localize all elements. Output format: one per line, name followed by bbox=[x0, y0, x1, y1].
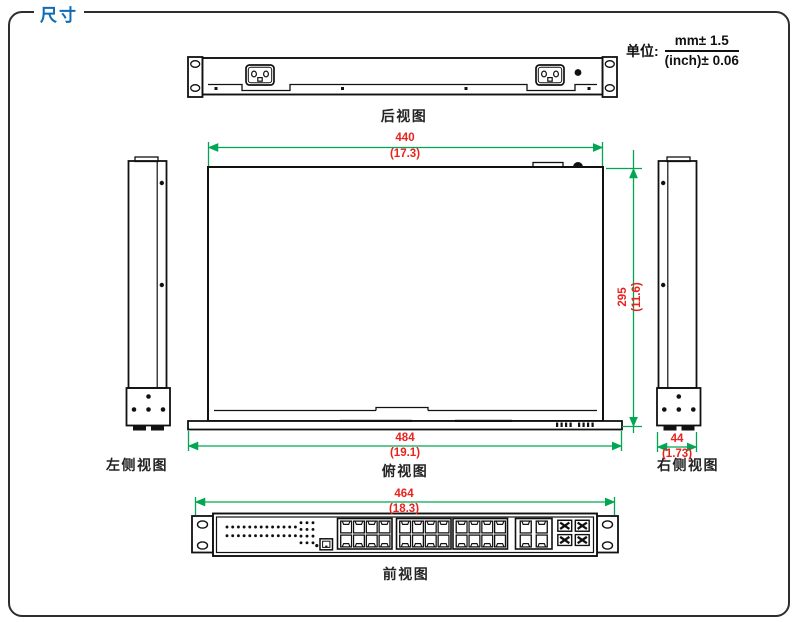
dim-484-inch: (19.1) bbox=[390, 448, 420, 460]
top-view-label: 俯视图 bbox=[382, 461, 429, 481]
right-side-view-drawing bbox=[657, 157, 701, 431]
dimension-diagram-page: 尺寸 单位: mm± 1.5 (inch)± 0.06 bbox=[0, 0, 800, 622]
screw-hole-icon bbox=[160, 181, 164, 185]
screw-hole-icon bbox=[661, 181, 665, 185]
top-body bbox=[208, 167, 603, 421]
side-bottom-bracket bbox=[127, 388, 171, 426]
rear-view-drawing bbox=[188, 57, 617, 97]
dim-295-mm: 295 bbox=[617, 282, 631, 311]
ear-hole-icon bbox=[605, 85, 614, 92]
power-inlet-icon bbox=[536, 65, 564, 85]
ear-hole-icon bbox=[198, 521, 208, 528]
reset-button-icon bbox=[315, 544, 318, 547]
top-view-drawing bbox=[188, 162, 622, 430]
dim-440-inch: (17.3) bbox=[390, 149, 420, 161]
ear-hole-icon bbox=[603, 521, 613, 528]
dim-295-inch: (11.6) bbox=[631, 282, 645, 311]
screw-hole-icon bbox=[160, 283, 164, 287]
side-body bbox=[659, 161, 697, 388]
dim-440-mm: 440 bbox=[395, 133, 414, 145]
unit-label: 单位: bbox=[626, 41, 659, 61]
unit-mm-tolerance: mm± 1.5 bbox=[665, 33, 739, 52]
side-body bbox=[129, 161, 167, 388]
bracket-screws bbox=[662, 394, 696, 412]
front-view-drawing bbox=[192, 514, 618, 557]
left-side-view-label: 左侧视图 bbox=[106, 455, 168, 475]
dim-44-mm: 44 bbox=[671, 434, 684, 446]
dim-464-inch: (18.3) bbox=[389, 504, 419, 516]
rear-view-label: 后视图 bbox=[381, 106, 428, 126]
unit-fraction: mm± 1.5 (inch)± 0.06 bbox=[665, 33, 739, 68]
page-title: 尺寸 bbox=[34, 1, 84, 26]
grounding-screw-icon bbox=[575, 69, 582, 76]
ear-hole-icon bbox=[603, 542, 613, 549]
ear-hole-icon bbox=[191, 85, 200, 92]
ear-hole-icon bbox=[191, 61, 200, 68]
power-inlet-icon bbox=[246, 65, 274, 85]
unit-tolerance-note: 单位: mm± 1.5 (inch)± 0.06 bbox=[626, 33, 739, 68]
unit-inch-tolerance: (inch)± 0.06 bbox=[665, 52, 739, 69]
side-bottom-bracket bbox=[657, 388, 701, 426]
dim-44-inch: (1.73) bbox=[662, 449, 692, 461]
dim-484-mm: 484 bbox=[395, 433, 414, 445]
bracket-screws bbox=[132, 394, 166, 412]
diagram-line-art bbox=[0, 0, 800, 622]
screw-hole-icon bbox=[661, 283, 665, 287]
front-view-label: 前视图 bbox=[383, 564, 430, 584]
dim-464-mm: 464 bbox=[394, 489, 413, 501]
ear-hole-icon bbox=[198, 542, 208, 549]
left-side-view-drawing bbox=[127, 157, 171, 431]
ear-hole-icon bbox=[605, 61, 614, 68]
dim-295-rotated: 295 (11.6) bbox=[617, 282, 645, 311]
